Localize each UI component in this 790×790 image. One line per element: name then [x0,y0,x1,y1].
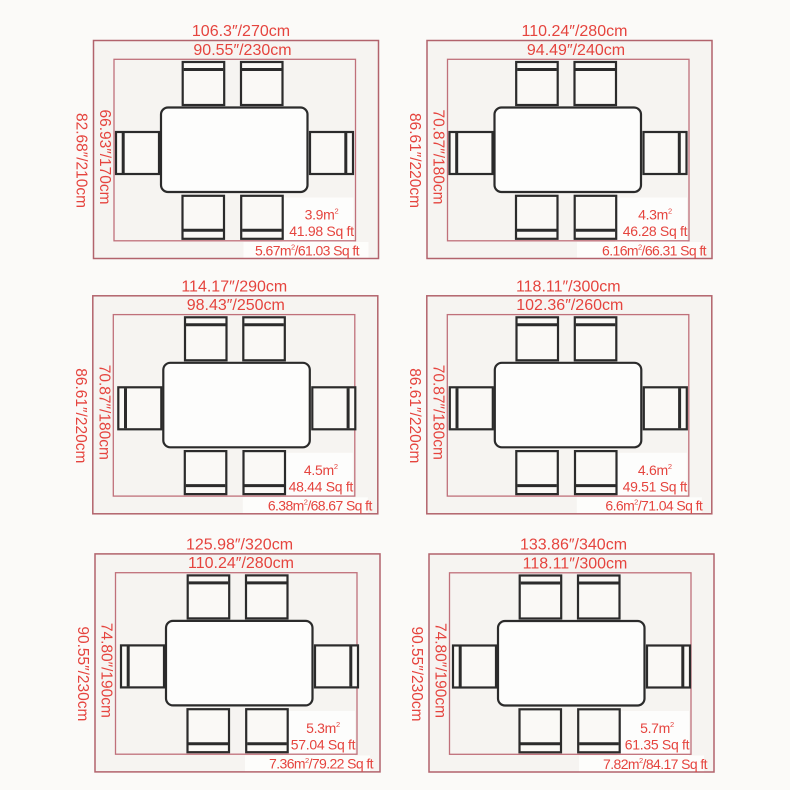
svg-text:90.55″/230cm: 90.55″/230cm [74,626,91,721]
svg-text:4.3m2: 4.3m2 [638,207,672,223]
svg-text:5.3m2: 5.3m2 [306,720,340,736]
svg-text:61.35 Sq ft: 61.35 Sq ft [625,737,690,753]
svg-text:6.38m2/68.67 Sq ft: 6.38m2/68.67 Sq ft [268,498,373,514]
svg-text:86.61″/220cm: 86.61″/220cm [406,368,423,463]
svg-text:41.98 Sq ft: 41.98 Sq ft [289,223,354,239]
svg-text:90.55″/230cm: 90.55″/230cm [193,42,291,59]
svg-text:118.11″/300cm: 118.11″/300cm [516,278,621,295]
svg-text:7.36m2/79.22 Sq ft: 7.36m2/79.22 Sq ft [269,756,374,772]
svg-text:133.86″/340cm: 133.86″/340cm [520,537,627,554]
svg-text:6.6m2/71.04 Sq ft: 6.6m2/71.04 Sq ft [605,498,702,514]
svg-text:70.87″/180cm: 70.87″/180cm [95,365,112,460]
svg-text:70.87″/180cm: 70.87″/180cm [429,365,446,460]
svg-text:114.17″/290cm: 114.17″/290cm [181,278,287,295]
svg-text:4.5m2: 4.5m2 [304,462,338,478]
svg-text:6.16m2/66.31 Sq ft: 6.16m2/66.31 Sq ft [602,242,707,258]
svg-text:94.49″/240cm: 94.49″/240cm [527,42,625,59]
svg-text:98.43″/250cm: 98.43″/250cm [187,297,285,314]
svg-text:48.44 Sq ft: 48.44 Sq ft [289,478,354,494]
svg-text:86.61″/220cm: 86.61″/220cm [72,368,89,463]
svg-text:86.61″/220cm: 86.61″/220cm [406,113,423,208]
svg-text:57.04 Sq ft: 57.04 Sq ft [291,736,356,752]
svg-text:5.7m2: 5.7m2 [640,720,674,736]
svg-text:5.67m2/61.03 Sq ft: 5.67m2/61.03 Sq ft [255,242,360,258]
svg-text:74.80″/190cm: 74.80″/190cm [432,623,449,718]
svg-text:90.55″/230cm: 90.55″/230cm [408,626,425,721]
svg-text:4.6m2: 4.6m2 [638,462,672,478]
svg-text:125.98″/320cm: 125.98″/320cm [186,536,293,553]
svg-text:70.87″/180cm: 70.87″/180cm [430,109,447,204]
svg-text:74.80″/190cm: 74.80″/190cm [98,623,115,718]
svg-text:118.11″/300cm: 118.11″/300cm [523,555,628,572]
svg-text:110.24″/280cm: 110.24″/280cm [188,555,294,572]
svg-text:110.24″/280cm: 110.24″/280cm [522,23,628,40]
svg-text:102.36″/260cm: 102.36″/260cm [516,297,623,314]
svg-text:82.68″/210cm: 82.68″/210cm [73,113,90,208]
svg-text:49.51 Sq ft: 49.51 Sq ft [623,478,688,494]
svg-text:3.9m2: 3.9m2 [305,207,339,223]
svg-text:106.3″/270cm: 106.3″/270cm [192,23,290,40]
svg-text:7.82m2/84.17 Sq ft: 7.82m2/84.17 Sq ft [603,756,708,772]
svg-text:66.93″/170cm: 66.93″/170cm [96,109,113,204]
svg-text:46.28 Sq ft: 46.28 Sq ft [623,223,688,239]
